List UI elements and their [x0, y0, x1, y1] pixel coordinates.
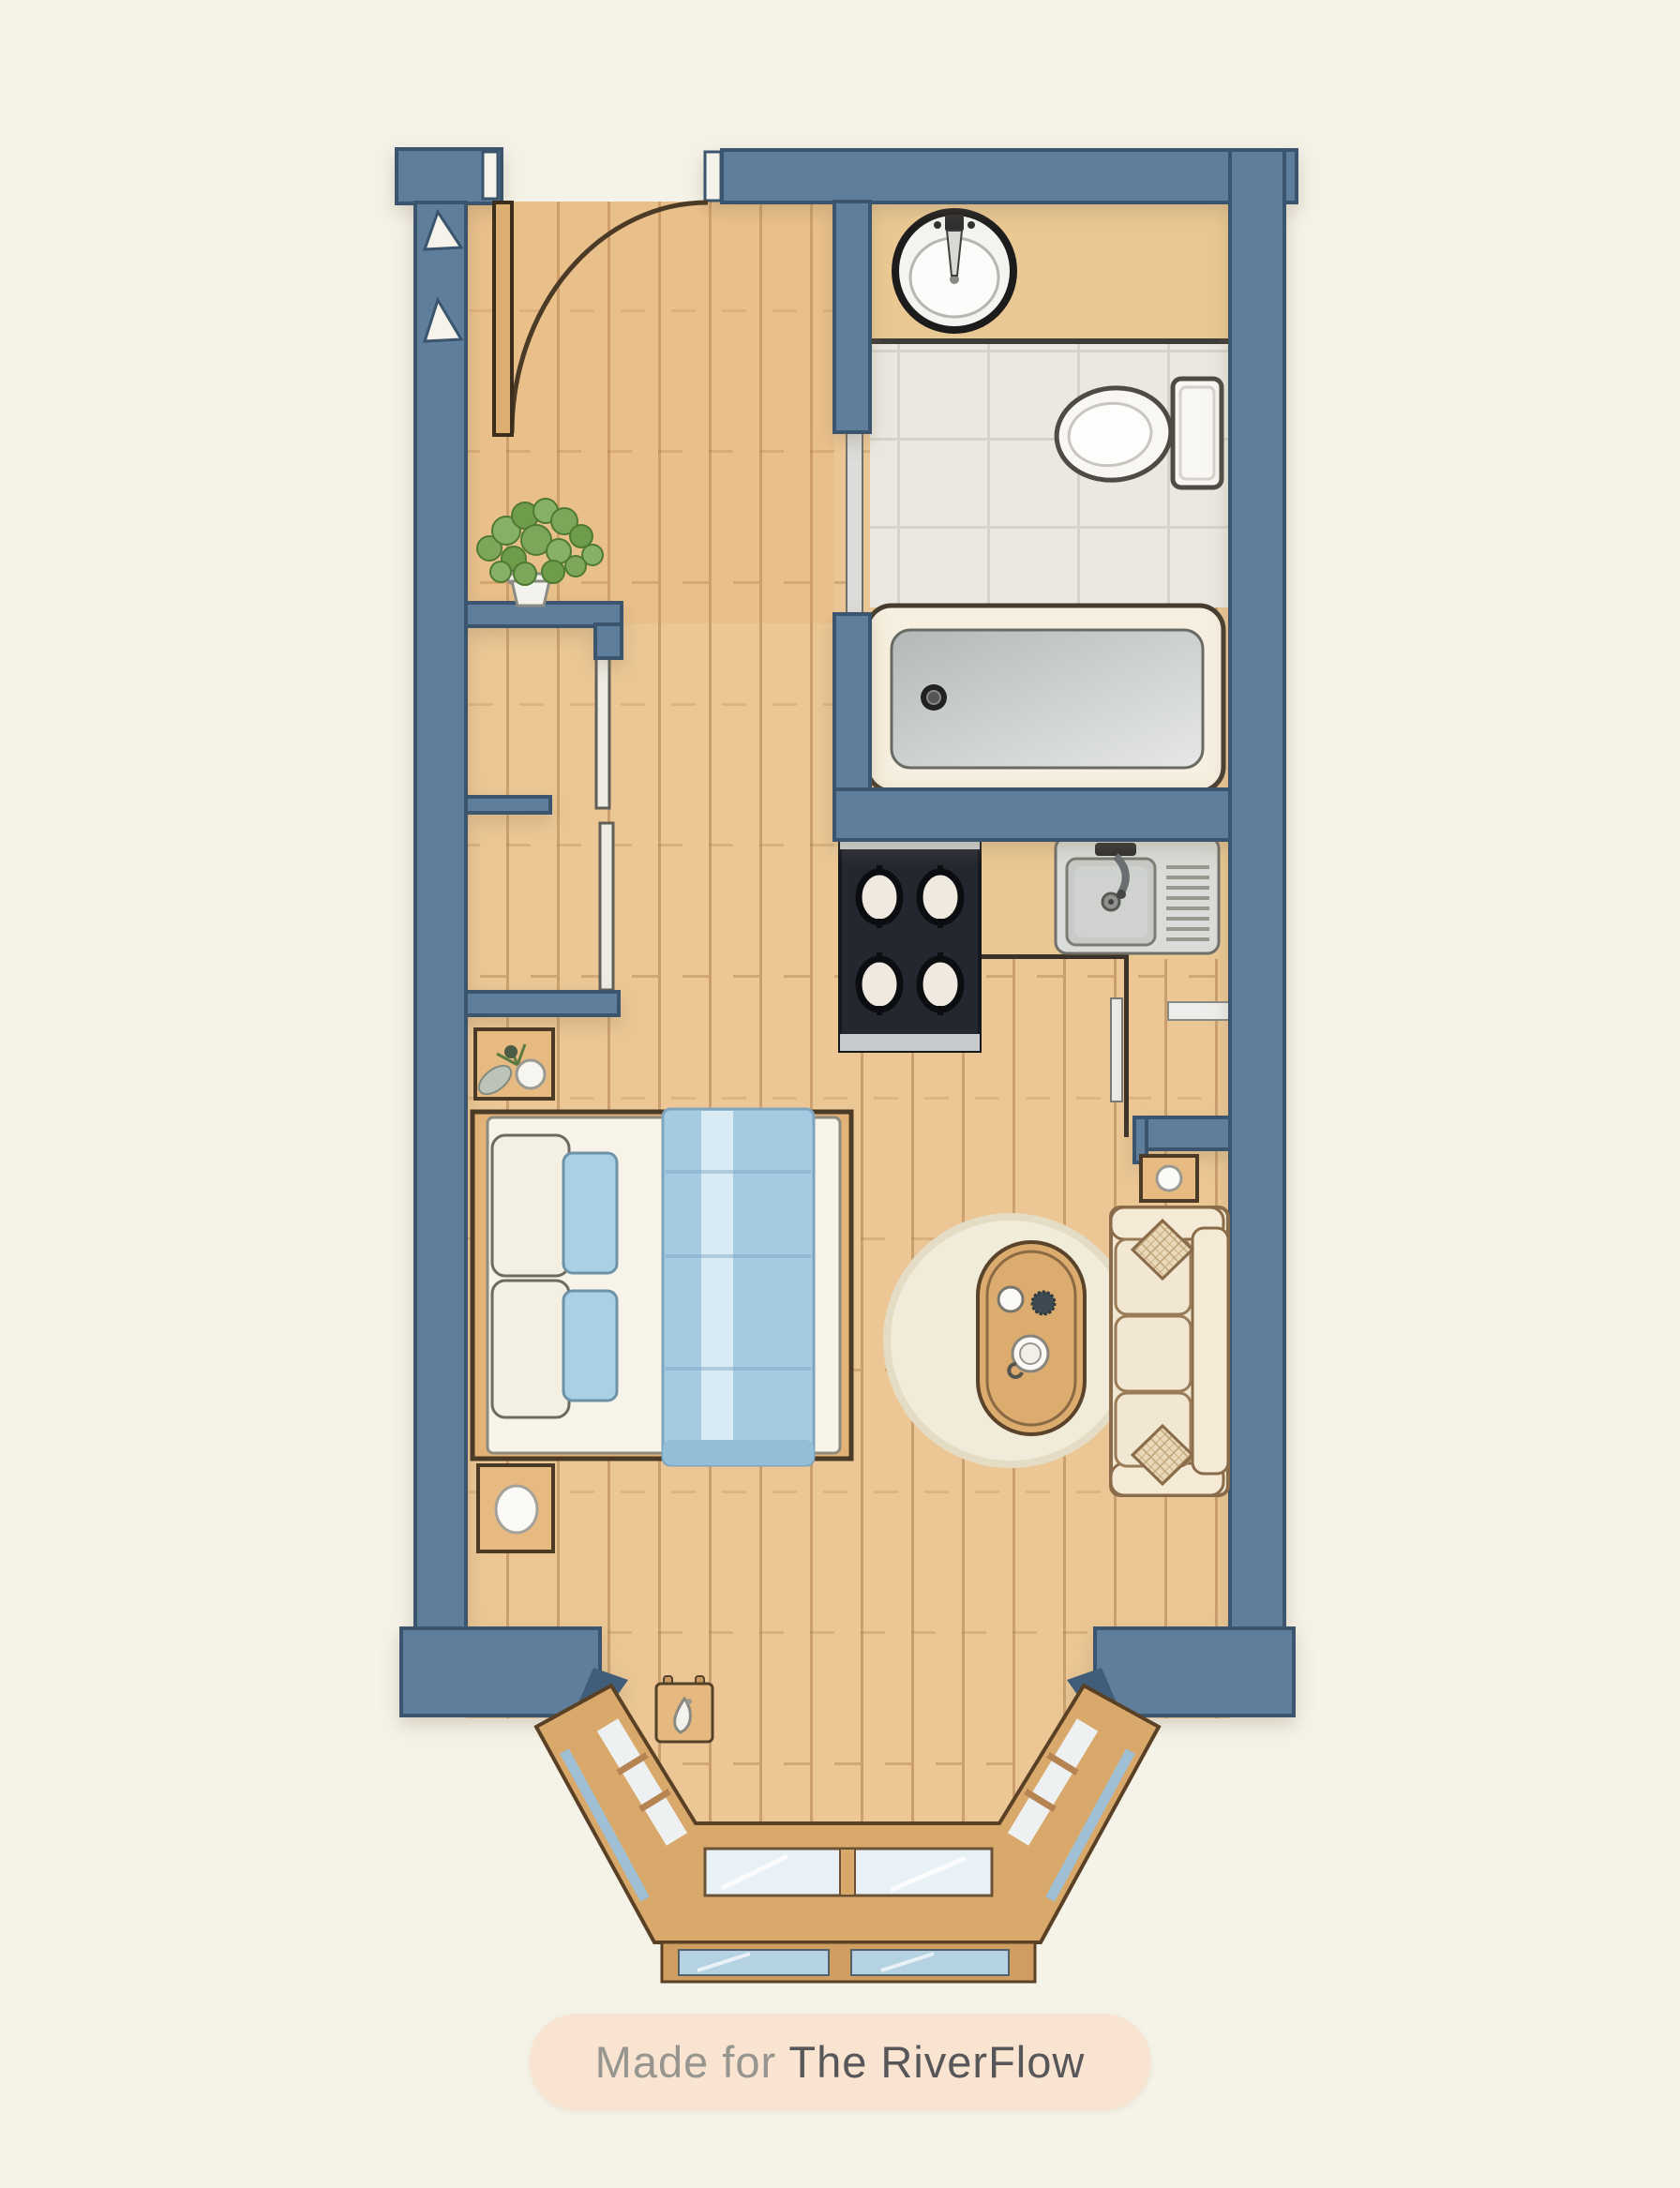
wall-window-slit-left [483, 152, 498, 199]
cabinet-sliding-door [1111, 998, 1122, 1101]
sofa-seat-cushion-2 [1116, 1316, 1191, 1391]
bathroom-pocket-door [847, 429, 862, 617]
wall-window-slit-right [705, 152, 721, 201]
blue-pillow-1 [563, 1153, 617, 1273]
four-burner-cooktop [840, 837, 980, 1051]
upper-closet-door [596, 654, 609, 808]
wall-bottom-left-block [401, 1628, 600, 1716]
sofa-backrest [1192, 1228, 1228, 1474]
dark-bowl [1032, 1292, 1055, 1314]
bathroom-partition-upper [834, 202, 870, 432]
outer-glazing-row [662, 1942, 1035, 1982]
bathroom-partition-lower [834, 614, 870, 792]
bathroom [834, 202, 1230, 791]
wall-bottom-right-block [1095, 1628, 1294, 1716]
white-pillow-2 [492, 1281, 569, 1417]
cabinet-edge [1124, 959, 1129, 1137]
side-table-with-lamp [1141, 1156, 1197, 1201]
small-cup [998, 1287, 1023, 1311]
lower-closet-door [600, 823, 613, 990]
floor-plan-drawing [0, 0, 1680, 2188]
caption-badge: Made for The RiverFlow [530, 2014, 1151, 2110]
floor-plan-stage: Made for The RiverFlow [0, 0, 1680, 2188]
double-bed [472, 1109, 851, 1465]
table-lamp [496, 1486, 537, 1533]
round-basin-sink [895, 212, 1013, 330]
living-alcove-stub [1134, 1117, 1230, 1149]
nightstand-with-lamp [478, 1465, 553, 1551]
sofa [1111, 1207, 1228, 1495]
kitchen-sink-with-drainboard [1056, 837, 1219, 953]
oval-coffee-table [978, 1242, 1085, 1434]
door-leaf [494, 202, 512, 435]
white-pillow-1 [492, 1135, 569, 1276]
blue-blanket [663, 1109, 814, 1465]
nightstand-with-plant [473, 1029, 553, 1100]
wall-hook-board [656, 1676, 712, 1742]
bathtub [867, 606, 1223, 791]
closet-stub-middle [466, 797, 550, 813]
center-glazing [705, 1849, 992, 1896]
caption-prefix: Made for [595, 2037, 789, 2087]
caption-brand: The RiverFlow [788, 2037, 1085, 2087]
wall-right [1230, 150, 1284, 1628]
blue-pillow-2 [563, 1291, 617, 1401]
closet-stub-bottom [466, 992, 619, 1015]
wall-left [415, 202, 466, 1628]
closet-sliding-doors [596, 654, 613, 990]
bathroom-kitchen-divider [834, 789, 1230, 840]
wall-shelf [1168, 1002, 1230, 1020]
wall-top [722, 150, 1297, 202]
